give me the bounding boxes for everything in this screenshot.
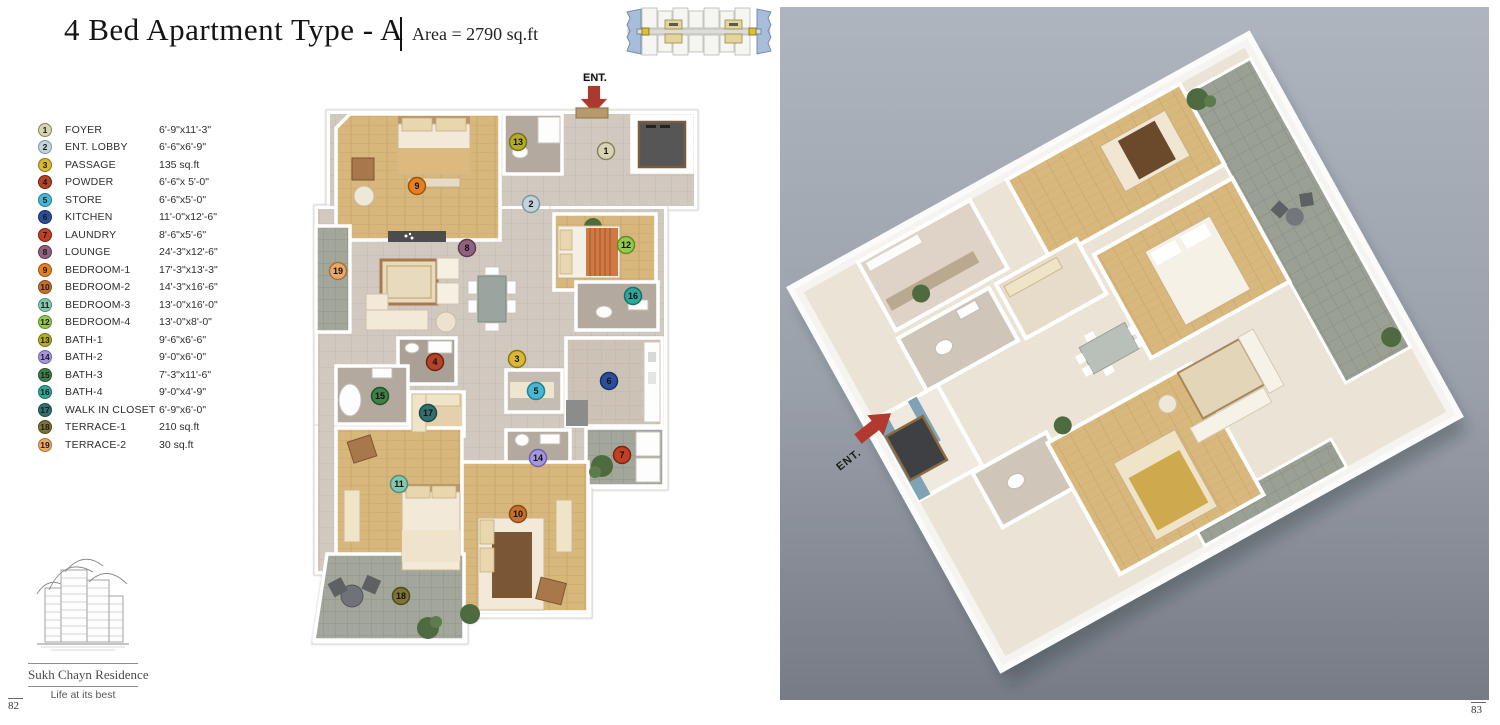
legend-room-dimension: 17'-3"x13'-3" [159,264,218,276]
legend-badge: 7 [38,228,52,242]
plan-badge-number: 14 [533,453,543,463]
legend-room-dimension: 30 sq.ft [159,439,193,451]
plan-badge-number: 6 [606,376,611,386]
brand-tagline: Life at its best [28,686,138,701]
legend-row: 7LAUNDRY8'-6"x5'-6" [38,226,218,244]
legend-row: 6KITCHEN11'-0"x12'-6" [38,209,218,227]
legend-row: 18TERRACE-1210 sq.ft [38,419,218,437]
legend-room-name: FOYER [65,124,159,136]
keyplan-thumbnail [625,3,773,60]
legend-room-name: BEDROOM-3 [65,299,159,311]
legend-row: 4POWDER6'-6"x 5'-0" [38,174,218,192]
legend-row: 19TERRACE-230 sq.ft [38,436,218,454]
legend-badge: 17 [38,403,52,417]
legend-badge: 15 [38,368,52,382]
legend-badge: 8 [38,245,52,259]
legend-badge: 3 [38,158,52,172]
legend-room-name: BEDROOM-2 [65,281,159,293]
floorplan-2d: ENT. [300,62,710,658]
legend-badge: 12 [38,315,52,329]
plan-badge-number: 9 [414,181,419,191]
legend-room-dimension: 6'-6"x5'-0" [159,194,206,206]
legend-badge: 4 [38,175,52,189]
plan-badge-number: 7 [619,450,624,460]
plan-badge-number: 16 [628,291,638,301]
room-terrace-2 [316,226,350,332]
plan-badge-number: 2 [528,199,533,209]
plan-badge-number: 12 [621,240,631,250]
legend-room-dimension: 13'-0"x8'-0" [159,316,212,328]
legend-row: 17WALK IN CLOSET6'-9"x6'-0" [38,401,218,419]
plan-badge-number: 10 [513,509,523,519]
legend-room-name: LAUNDRY [65,229,159,241]
legend-row: 1FOYER6'-9"x11'-3" [38,121,218,139]
plan-badge-number: 1 [603,146,608,156]
legend-room-dimension: 210 sq.ft [159,421,199,433]
plan-badge-number: 11 [394,479,404,489]
legend-room-name: PASSAGE [65,159,159,171]
building-sketch [31,548,135,656]
legend-room-name: POWDER [65,176,159,188]
legend-room-dimension: 9'-6"x6'-6" [159,334,206,346]
legend-badge: 11 [38,298,52,312]
legend-room-name: TERRACE-2 [65,439,159,451]
legend-row: 9BEDROOM-117'-3"x13'-3" [38,261,218,279]
legend-room-name: STORE [65,194,159,206]
entrance-label-3d: ENT. [834,447,863,474]
legend-room-dimension: 13'-0"x16'-0" [159,299,218,311]
legend-row: 5STORE6'-6"x5'-0" [38,191,218,209]
legend-row: 14BATH-29'-0"x6'-0" [38,349,218,367]
legend-row: 15BATH-37'-3"x11'-6" [38,366,218,384]
legend-badge: 9 [38,263,52,277]
plan-badge-number: 3 [514,354,519,364]
legend-room-name: TERRACE-1 [65,421,159,433]
plan-badge-number: 8 [464,243,469,253]
plan-badge-number: 13 [513,137,523,147]
legend-row: 11BEDROOM-313'-0"x16'-0" [38,296,218,314]
legend-row: 13BATH-19'-6"x6'-6" [38,331,218,349]
legend-badge: 6 [38,210,52,224]
floorplan-3d: ENT. [780,7,1489,700]
legend-room-name: BATH-1 [65,334,159,346]
legend-room-dimension: 8'-6"x5'-6" [159,229,206,241]
room-legend: 1FOYER6'-9"x11'-3"2ENT. LOBBY6'-6"x6'-9"… [38,121,218,454]
legend-room-dimension: 24'-3"x12'-6" [159,246,218,258]
legend-room-dimension: 11'-0"x12'-6" [159,211,217,223]
legend-badge: 1 [38,123,52,137]
legend-row: 16BATH-49'-0"x4'-9" [38,384,218,402]
brochure-page: 4 Bed Apartment Type - A Area = 2790 sq.… [0,0,1500,725]
legend-room-dimension: 9'-0"x4'-9" [159,386,206,398]
plan-badge-number: 17 [423,408,433,418]
legend-room-dimension: 6'-6"x6'-9" [159,141,206,153]
legend-room-name: KITCHEN [65,211,159,223]
plan-badge-number: 4 [432,357,437,367]
brand-name: Sukh Chayn Residence [28,663,138,683]
apartment-3d [790,34,1460,669]
legend-row: 8LOUNGE24'-3"x12'-6" [38,244,218,262]
legend-room-dimension: 6'-9"x11'-3" [159,124,211,136]
legend-room-name: ENT. LOBBY [65,141,159,153]
legend-badge: 14 [38,350,52,364]
plan-badge-number: 15 [375,391,385,401]
legend-row: 10BEDROOM-214'-3"x16'-6" [38,279,218,297]
legend-room-dimension: 14'-3"x16'-6" [159,281,218,293]
plan-badge-number: 19 [333,266,343,276]
legend-room-name: BATH-4 [65,386,159,398]
legend-row: 12BEDROOM-413'-0"x8'-0" [38,314,218,332]
legend-badge: 13 [38,333,52,347]
legend-badge: 16 [38,385,52,399]
legend-room-name: BEDROOM-1 [65,264,159,276]
entrance-label-2d: ENT. [583,72,607,84]
legend-badge: 2 [38,140,52,154]
page-title: 4 Bed Apartment Type - A [64,12,403,48]
brand-logo: Sukh Chayn Residence Life at its best [28,548,138,701]
legend-room-name: BATH-2 [65,351,159,363]
legend-row: 2ENT. LOBBY6'-6"x6'-9" [38,139,218,157]
legend-room-name: BATH-3 [65,369,159,381]
title-divider [400,17,402,51]
page-number-left: 82 [8,698,23,712]
legend-badge: 18 [38,420,52,434]
plan-badge-number: 18 [396,591,406,601]
plan-badge-number: 5 [533,386,538,396]
render-3d-panel: ENT. [780,7,1489,700]
legend-row: 3PASSAGE135 sq.ft [38,156,218,174]
legend-room-name: BEDROOM-4 [65,316,159,328]
legend-room-dimension: 135 sq.ft [159,159,199,171]
legend-room-name: LOUNGE [65,246,159,258]
legend-room-dimension: 6'-6"x 5'-0" [159,176,209,188]
legend-badge: 19 [38,438,52,452]
legend-badge: 5 [38,193,52,207]
legend-room-name: WALK IN CLOSET [65,404,159,416]
legend-badge: 10 [38,280,52,294]
legend-room-dimension: 9'-0"x6'-0" [159,351,206,363]
legend-room-dimension: 6'-9"x6'-0" [159,404,206,416]
area-label: Area = 2790 sq.ft [412,24,538,45]
page-number-right: 83 [1471,702,1486,716]
legend-room-dimension: 7'-3"x11'-6" [159,369,211,381]
